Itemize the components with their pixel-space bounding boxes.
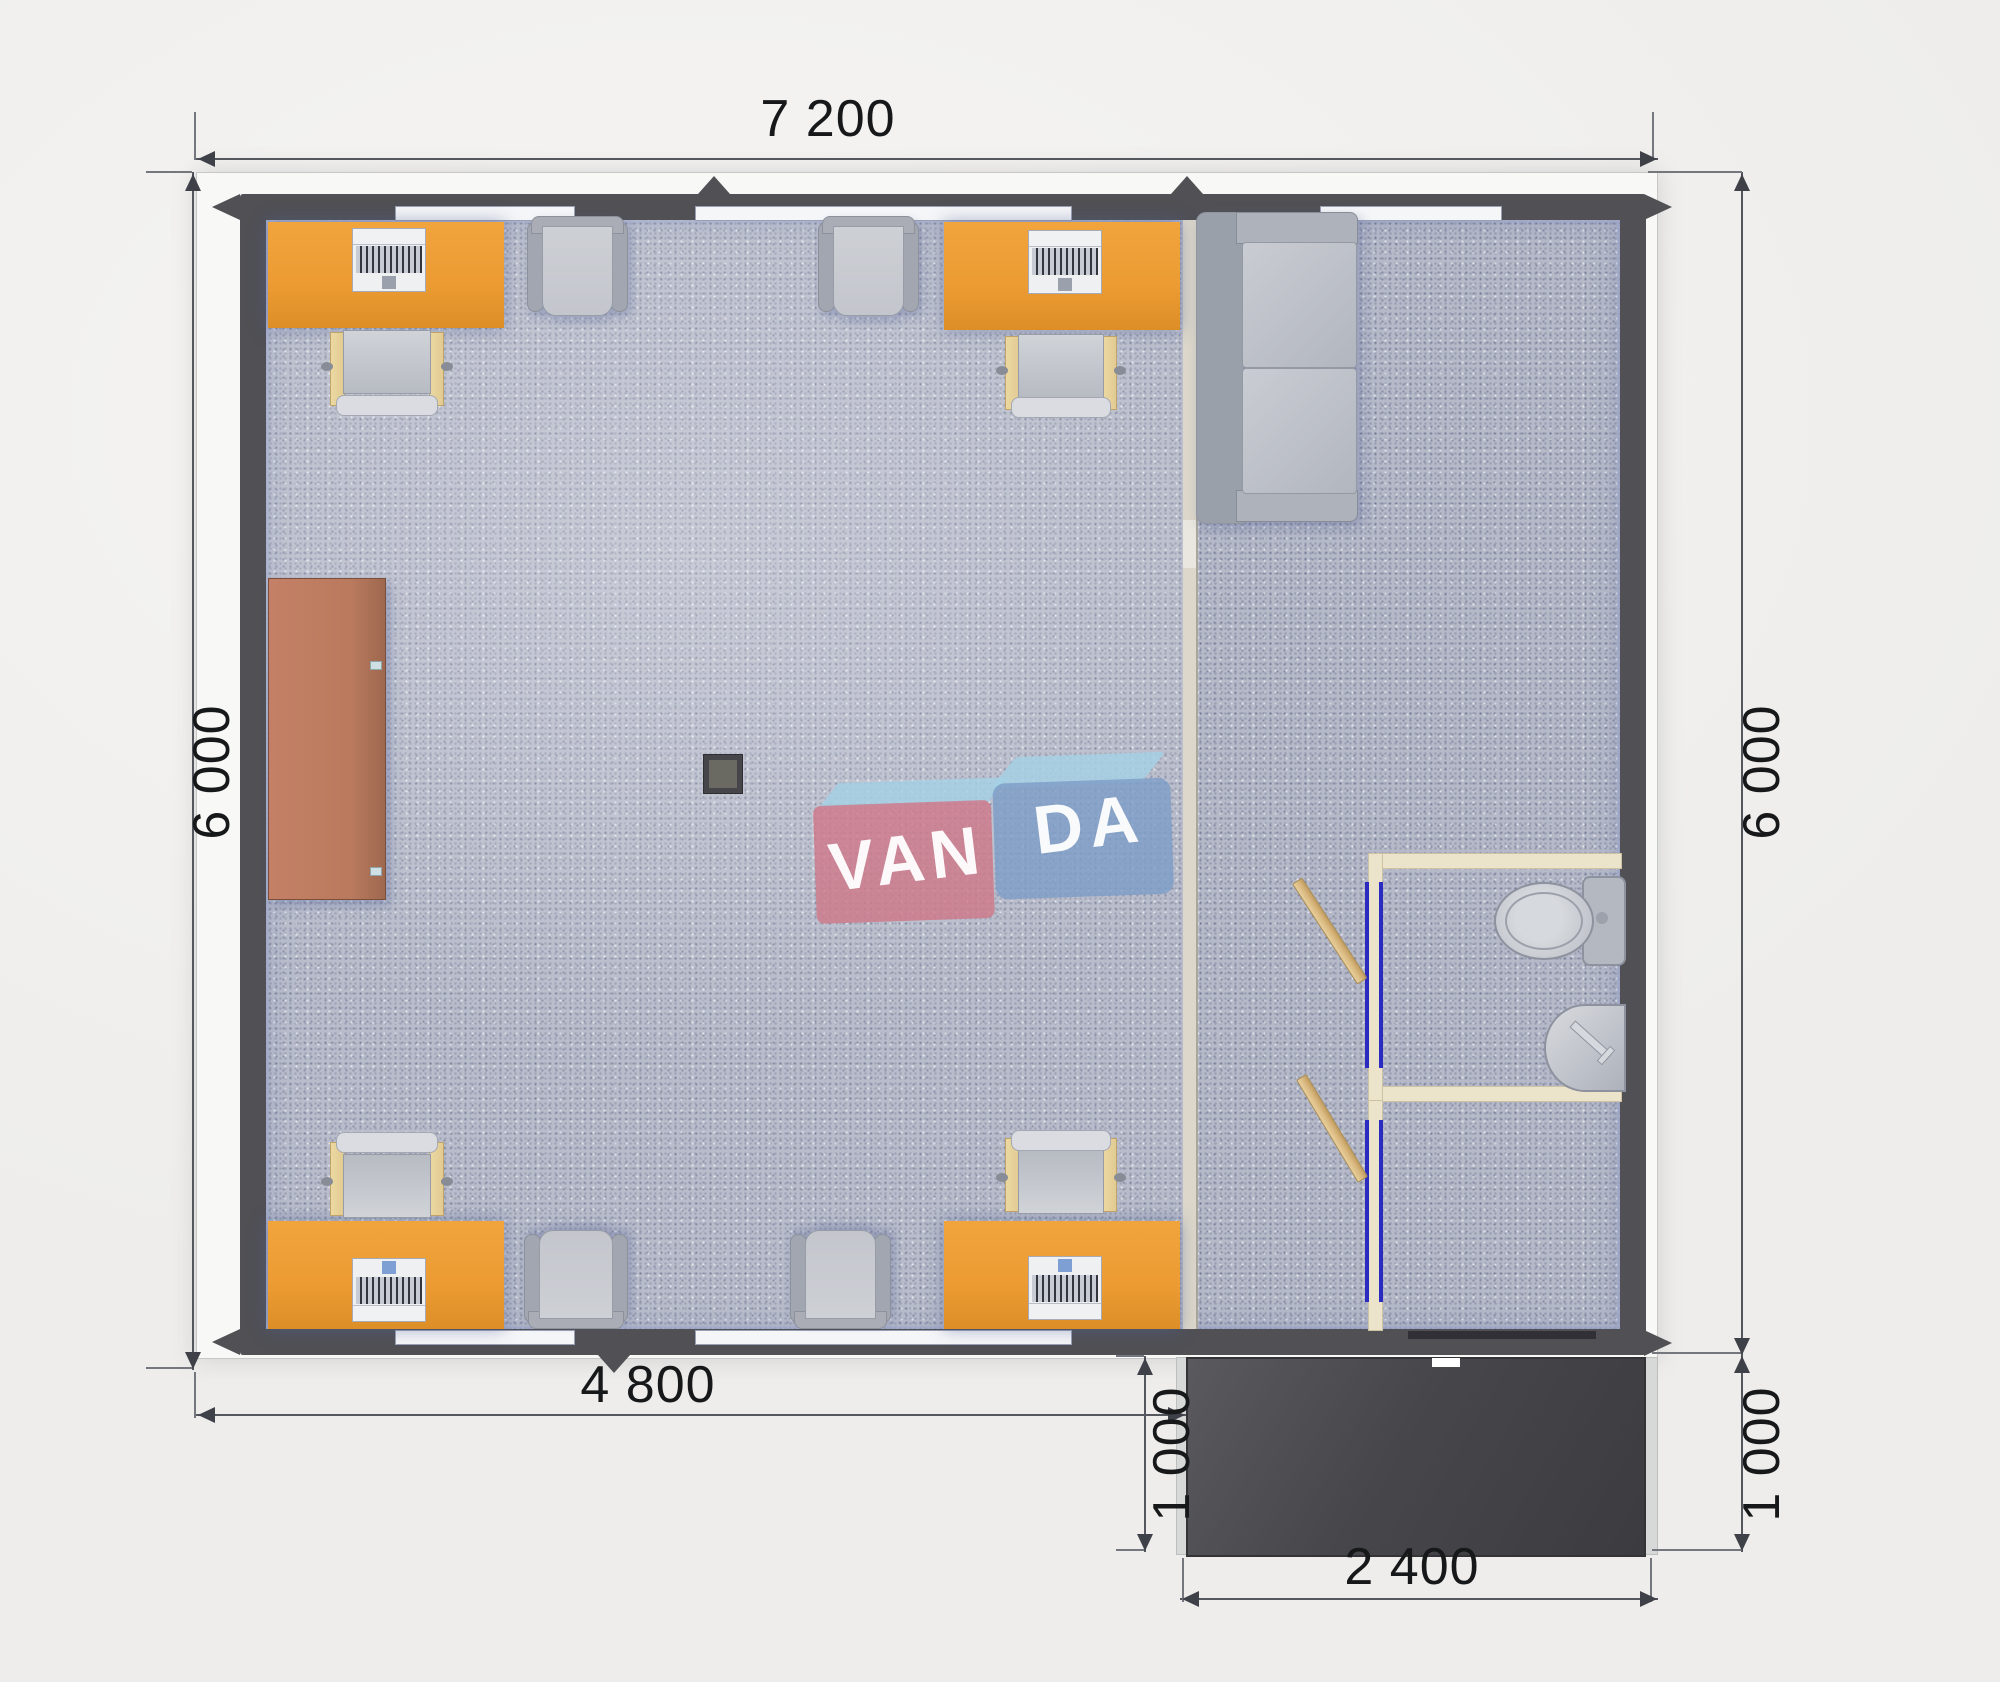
extension-line [1116,1355,1144,1357]
watermark-text: VAN [825,816,989,903]
bathroom-wall [1368,853,1622,869]
entry-door-header [1408,1331,1596,1339]
dimension-line-top [196,158,1658,160]
entrance-porch [1186,1357,1646,1557]
vanda-watermark: VAN DA [795,741,1181,930]
armchair [790,1230,891,1329]
dimension-line-office-width [196,1414,1186,1416]
dim-label-porch-depth-right: 1 000 [1735,1304,1789,1604]
armchair [527,216,628,316]
office-chair [330,1132,444,1218]
armchair [524,1230,628,1329]
dim-label-porch-depth-left: 1 000 [1145,1304,1199,1604]
dimension-arrow-icon [1734,174,1750,191]
dimension-arrow-icon [185,174,201,191]
extension-line [1648,171,1742,173]
floor-plan-sheet: VAN DA 7 200 6 000 6 000 4 800 1 000 1 0… [0,0,2000,1682]
entry-door-threshold [1432,1358,1460,1367]
corner-marker-icon [212,194,240,220]
door-frame [1379,1120,1383,1302]
dim-label-top-width: 7 200 [678,92,978,146]
door-frame [1365,1120,1369,1302]
dim-label-right-height: 6 000 [1735,622,1789,922]
dim-label-porch-width: 2 400 [1262,1540,1562,1594]
dim-label-office-width: 4 800 [498,1358,798,1412]
dimension-arrow-icon [198,1407,215,1423]
partition-door-opening [1183,520,1196,568]
office-chair [330,330,444,416]
support-column [703,754,743,794]
dimension-arrow-icon [1640,151,1657,167]
watermark-text: DA [1030,784,1148,865]
dimension-line-porch-width [1180,1598,1658,1600]
extension-line [146,171,192,173]
office-chair [1005,1130,1117,1214]
window [695,1330,1072,1345]
corner-marker-icon [1644,194,1672,220]
wall-joint-marker-icon [698,176,730,194]
office-chair [1005,334,1117,418]
extension-line [1652,1352,1742,1354]
wall-joint-marker-icon [1171,176,1203,194]
extension-line [1652,1549,1742,1551]
dimension-arrow-icon [198,151,215,167]
storage-cabinet [268,578,386,900]
sofa [1196,212,1358,522]
window [395,1330,575,1345]
computer-icon [1028,1256,1102,1320]
computer-icon [352,1258,426,1322]
dimension-arrow-icon [185,1352,201,1369]
computer-icon [352,228,426,292]
armchair [818,216,919,316]
computer-icon [1028,230,1102,294]
dim-label-left-height: 6 000 [185,622,239,922]
extension-line [194,1372,196,1418]
dimension-arrow-icon [1640,1591,1657,1607]
corner-marker-icon [212,1329,240,1355]
door-frame [1379,882,1383,1068]
toilet-bowl [1494,882,1594,960]
extension-line [194,112,196,160]
